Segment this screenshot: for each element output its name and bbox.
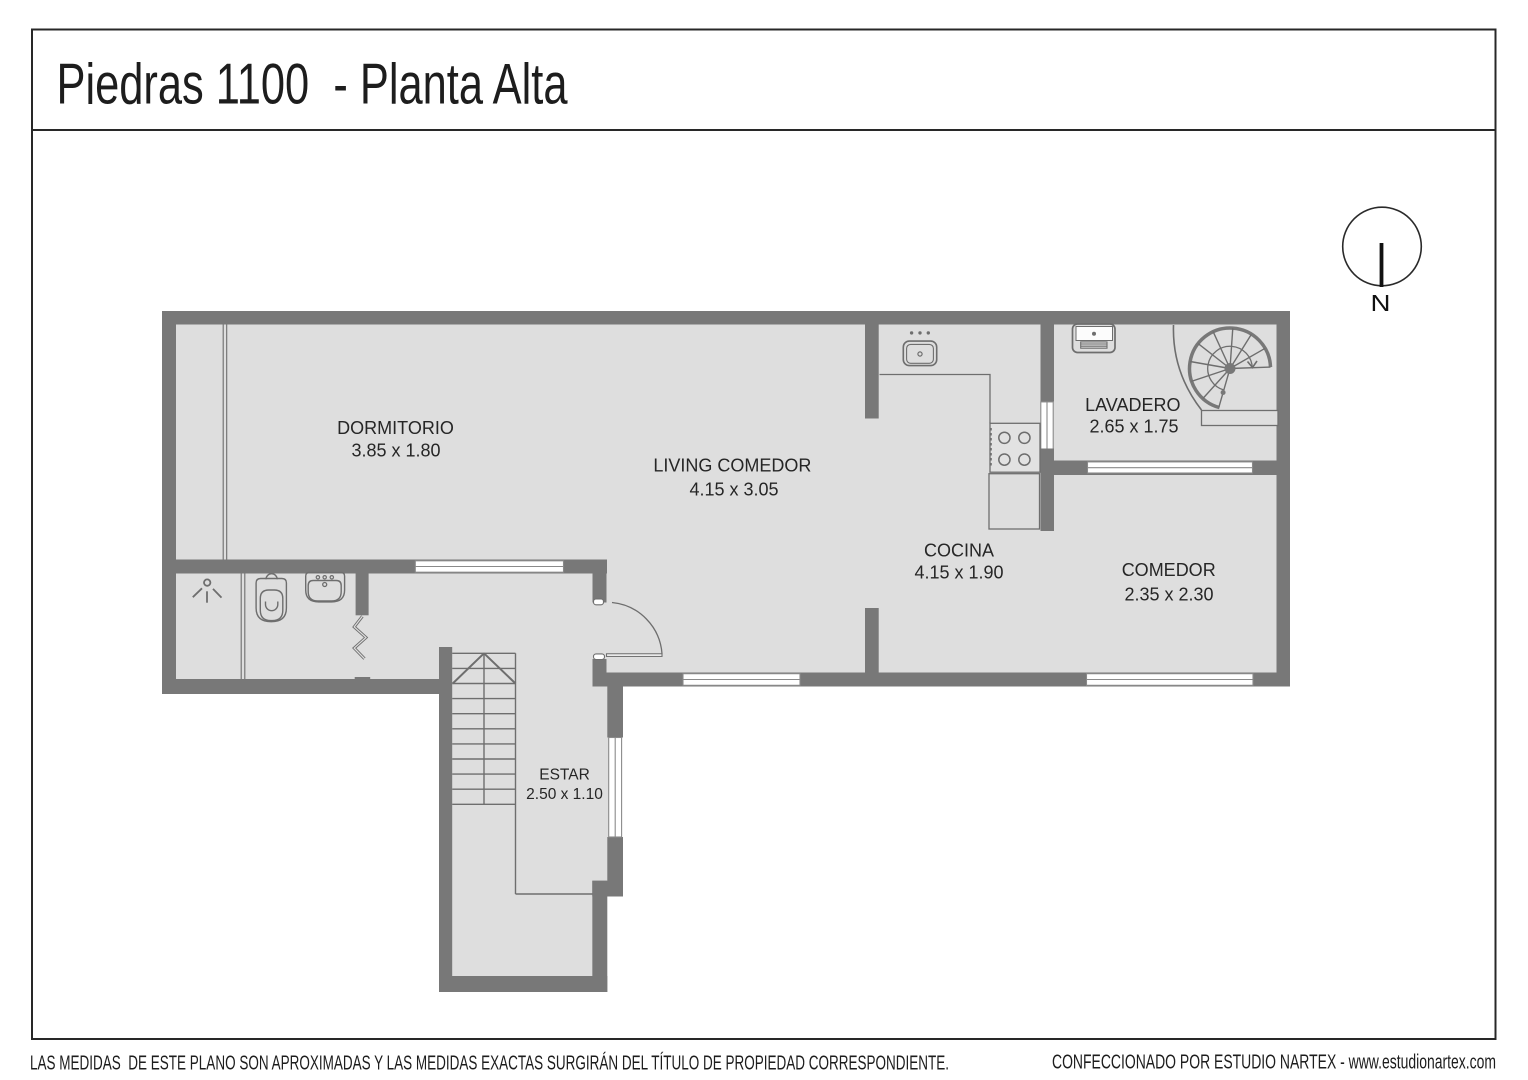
svg-text:4.15 x 1.90: 4.15 x 1.90 bbox=[914, 563, 1003, 583]
svg-text:2.65 x 1.75: 2.65 x 1.75 bbox=[1089, 417, 1178, 437]
svg-text:COCINA: COCINA bbox=[924, 541, 994, 561]
svg-text:DORMITORIO: DORMITORIO bbox=[337, 418, 454, 438]
svg-text:LAS MEDIDAS DE ESTE PLANO SON: LAS MEDIDAS DE ESTE PLANO SON APROXIMADA… bbox=[30, 1052, 949, 1075]
svg-text:3.85 x 1.80: 3.85 x 1.80 bbox=[351, 441, 440, 461]
svg-text:N: N bbox=[1371, 290, 1391, 316]
svg-text:LAVADERO: LAVADERO bbox=[1085, 395, 1180, 415]
svg-text:2.35 x 2.30: 2.35 x 2.30 bbox=[1124, 584, 1213, 604]
svg-text:COMEDOR: COMEDOR bbox=[1122, 560, 1216, 580]
svg-text:LIVING COMEDOR: LIVING COMEDOR bbox=[653, 456, 811, 476]
svg-text:4.15 x 3.05: 4.15 x 3.05 bbox=[689, 480, 778, 500]
svg-text:2.50 x 1.10: 2.50 x 1.10 bbox=[526, 786, 603, 803]
svg-text:CONFECCIONADO POR ESTUDIO NART: CONFECCIONADO POR ESTUDIO NARTEX - www.e… bbox=[1052, 1052, 1496, 1074]
svg-text:Piedras 1100 - Planta Alta: Piedras 1100 - Planta Alta bbox=[57, 53, 568, 117]
svg-text:ESTAR: ESTAR bbox=[539, 766, 590, 783]
